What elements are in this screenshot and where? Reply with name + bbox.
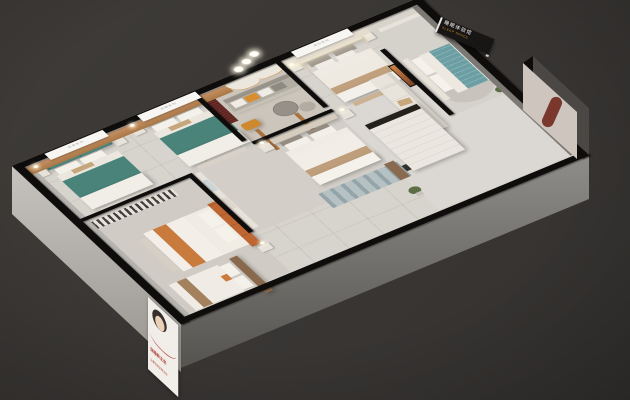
arch-wall-svg xyxy=(0,0,630,400)
showroom-render: 轻奢系列 舒眠系列 简约系列 深睡新主张 全屋软装定制体验 睡眠体验馆 SLEE… xyxy=(0,0,630,400)
